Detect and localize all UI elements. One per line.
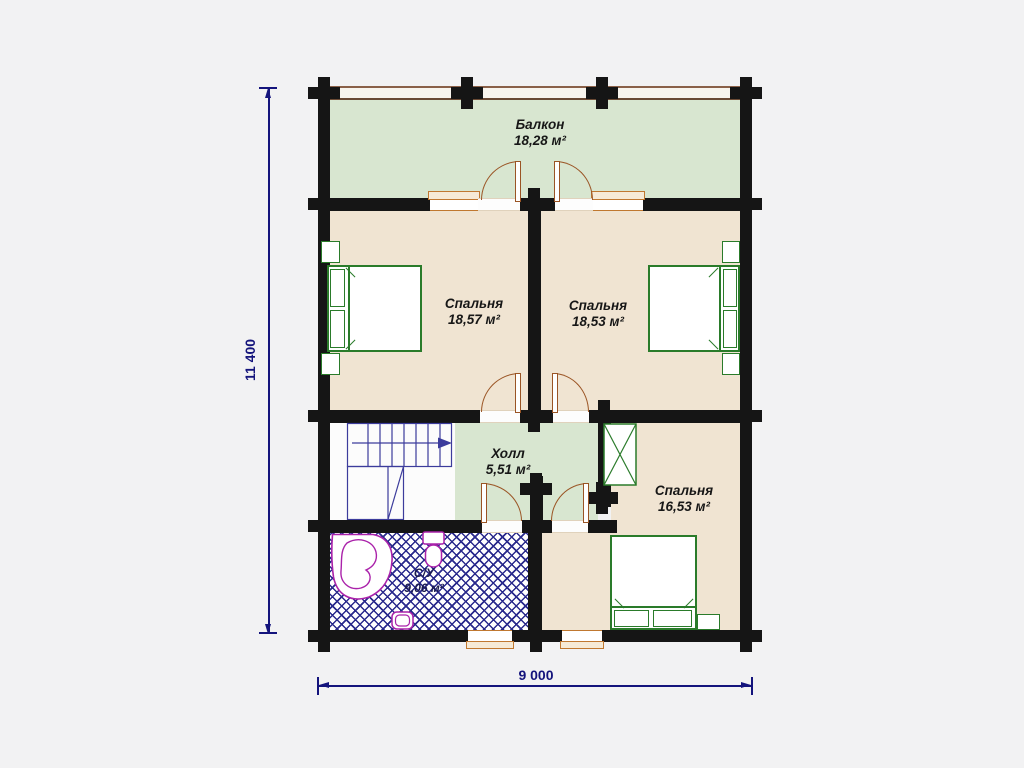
room-label-bedroom-left: Спальня 18,57 м² [445, 296, 503, 329]
log-joint-icon [451, 77, 483, 109]
pillow-icon [723, 269, 737, 307]
door-leaf [515, 373, 521, 413]
nightstand-icon [697, 614, 720, 630]
log-joint-icon [520, 620, 552, 652]
room-label-hall: Холл 5,51 м² [486, 446, 531, 479]
balcony-railing [318, 86, 752, 100]
room-label-bedroom-bottom: Спальня 16,53 м² [655, 483, 713, 516]
wall-hall-a [330, 520, 482, 533]
room-label-balcony: Балкон 18,28 м² [514, 117, 566, 150]
dimension-line-vertical [268, 88, 270, 634]
log-joint-icon [730, 77, 762, 109]
room-name: Спальня [655, 483, 713, 499]
door-opening [482, 520, 522, 533]
pillow-icon [614, 610, 649, 627]
wall-balcony-a [330, 198, 430, 211]
bathtub-icon [331, 533, 395, 607]
room-name: Спальня [445, 296, 503, 312]
room-area: 18,57 м² [445, 312, 503, 328]
room-name: Спальня [569, 298, 627, 314]
wardrobe-icon [603, 423, 637, 486]
window-sill [466, 641, 514, 649]
nightstand-icon [321, 353, 340, 375]
wall-bedrooms-divider [528, 198, 541, 423]
wall-bottom-a [318, 630, 468, 642]
log-joint-icon [518, 400, 550, 432]
room-name: С/У [404, 566, 444, 581]
room-label-bathroom: С/У 9,06 м² [404, 566, 444, 595]
wall-hall-c [588, 520, 617, 533]
room-label-bedroom-right: Спальня 18,53 м² [569, 298, 627, 331]
wall-balcony-c [643, 198, 740, 211]
bedroom-bottom-floor-ext [541, 533, 611, 630]
dimension-value-vertical: 11 400 [242, 324, 258, 396]
floor-plan: Балкон 18,28 м² Спальня 18,57 м² Спальня… [0, 0, 1024, 768]
nightstand-icon [321, 241, 340, 263]
room-area: 16,53 м² [655, 499, 713, 515]
dimension-tick [751, 677, 753, 695]
dimension-arrow-icon [319, 682, 329, 688]
log-joint-icon [586, 77, 618, 109]
log-joint-icon [518, 188, 550, 220]
room-area: 5,51 м² [486, 462, 531, 478]
door-leaf [583, 483, 589, 523]
room-area: 18,28 м² [514, 133, 566, 149]
window-sill [428, 191, 480, 200]
window-sill [560, 641, 604, 649]
room-area: 9,06 м² [404, 581, 444, 596]
bed-headboard-line [348, 265, 350, 352]
pillow-icon [653, 610, 692, 627]
door-leaf [552, 373, 558, 413]
door-leaf [515, 161, 521, 202]
dimension-line-horizontal [318, 685, 752, 687]
dimension-arrow-icon [265, 88, 271, 98]
dimension-arrow-icon [265, 624, 271, 634]
log-joint-icon [730, 400, 762, 432]
log-joint-icon [308, 620, 340, 652]
stairs-icon [330, 418, 455, 520]
log-joint-icon [308, 188, 340, 220]
nightstand-icon [722, 353, 740, 375]
dimension-value-horizontal: 9 000 [494, 667, 578, 683]
wall-right [740, 86, 752, 642]
door-leaf [554, 161, 560, 202]
room-name: Холл [486, 446, 531, 462]
log-joint-icon [730, 188, 762, 220]
window-sill [591, 191, 645, 200]
room-name: Балкон [514, 117, 566, 133]
log-joint-icon [730, 620, 762, 652]
log-joint-icon [308, 77, 340, 109]
log-joint-icon [586, 482, 618, 514]
door-leaf [481, 483, 487, 523]
pillow-icon [330, 310, 345, 348]
pillow-icon [330, 269, 345, 307]
nightstand-icon [722, 241, 740, 263]
dimension-arrow-icon [741, 682, 751, 688]
bed-headboard-line [719, 265, 721, 352]
sink-icon [391, 611, 415, 631]
toilet-icon [422, 531, 446, 569]
pillow-icon [723, 310, 737, 348]
room-area: 18,53 м² [569, 314, 627, 330]
